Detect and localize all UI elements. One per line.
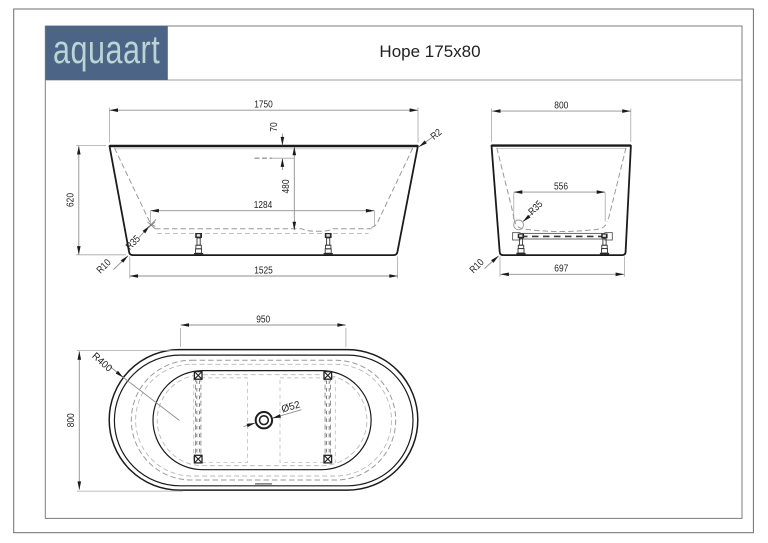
svg-text:aquaart: aquaart [53, 28, 160, 72]
